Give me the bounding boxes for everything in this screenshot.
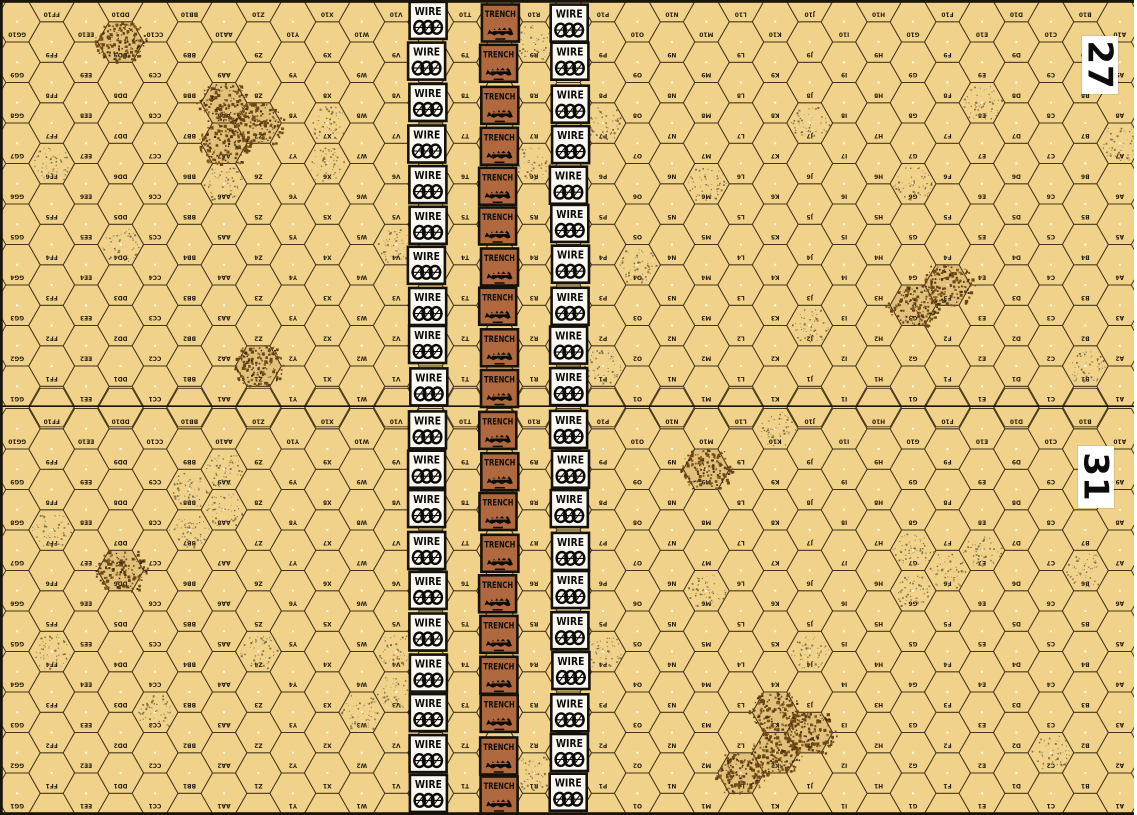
wire-counter[interactable]: WIRE — [551, 5, 588, 42]
hex-label: R6 — [530, 579, 539, 585]
hex-label: Z2 — [254, 334, 262, 340]
hex-label: D7 — [1012, 132, 1021, 138]
hex-label: L6 — [737, 172, 745, 178]
wire-counter[interactable]: WIRE — [552, 571, 589, 608]
hex-label: T2 — [461, 334, 469, 340]
wire-counter-label: WIRE — [415, 738, 442, 751]
hex-label: T5 — [461, 620, 469, 626]
wire-counter[interactable]: WIRE — [552, 246, 589, 283]
hex-label: J6 — [807, 172, 814, 178]
hex-label: CC7 — [149, 152, 162, 158]
trench-counter-label: TRENCH — [483, 662, 514, 672]
wire-counter[interactable]: WIRE — [408, 247, 445, 284]
hex-label: Z5 — [254, 620, 262, 626]
hex-label: X6 — [323, 172, 332, 178]
hex-label: O5 — [633, 233, 642, 239]
hex-label: Z1 — [254, 782, 262, 788]
trench-counter-label: TRENCH — [484, 92, 515, 102]
hex-label: L9 — [737, 458, 745, 464]
hex-label: I9 — [841, 478, 847, 484]
hex-label: M8 — [701, 112, 711, 118]
hex-label: N5 — [667, 620, 676, 626]
board-number-panel-27: 27 — [1082, 36, 1118, 94]
hex-label: J2 — [807, 334, 814, 340]
trench-counter[interactable]: TRENCH — [480, 738, 517, 775]
hex-label: E8 — [978, 112, 986, 118]
trench-counter-label: TRENCH — [482, 581, 513, 591]
trench-counter[interactable]: TRENCH — [481, 87, 518, 124]
hex-label: H7 — [874, 539, 883, 545]
hex-label: Z10 — [252, 10, 264, 16]
hex-label: EE1 — [80, 802, 92, 808]
hex-label: C7 — [1047, 152, 1055, 158]
hex-label: A7 — [1115, 559, 1124, 565]
hex-label: C8 — [1047, 112, 1055, 118]
wire-counter[interactable]: WIRE — [410, 207, 447, 244]
hex-label: G10 — [906, 31, 919, 37]
trench-counter[interactable]: TRENCH — [480, 657, 517, 694]
hex-label: CC7 — [149, 559, 162, 565]
hex-label: L5 — [737, 213, 745, 219]
hex-label: I1 — [841, 802, 847, 808]
hex-label: K7 — [771, 559, 780, 565]
hex-label: E4 — [978, 681, 986, 687]
hex-label: E8 — [978, 519, 986, 525]
hex-label: N3 — [667, 294, 676, 300]
hex-label: T8 — [461, 91, 469, 97]
hex-label: K8 — [771, 112, 780, 118]
hex-label: T10 — [459, 417, 471, 423]
hex-label: M3 — [701, 721, 711, 727]
trench-counter[interactable]: TRENCH — [481, 329, 518, 366]
hex-label: J8 — [807, 498, 814, 504]
hex-label: F9 — [943, 458, 951, 464]
hex-label: H6 — [874, 579, 883, 585]
wire-counter-label: WIRE — [557, 291, 584, 304]
hex-label: X8 — [323, 498, 332, 504]
hex-label: AA9 — [217, 71, 230, 77]
hex-label: EE10 — [78, 31, 94, 37]
hex-label: M1 — [701, 802, 711, 808]
hex-label: F9 — [943, 51, 951, 57]
hex-label: J5 — [807, 213, 814, 219]
hex-label: L2 — [737, 334, 745, 340]
trench-counter[interactable]: TRENCH — [481, 370, 518, 407]
hex-label: O2 — [633, 762, 642, 768]
trench-counter[interactable]: TRENCH — [481, 535, 518, 572]
wire-counter[interactable]: WIRE — [551, 205, 588, 242]
hex-label: BB1 — [183, 375, 196, 381]
hex-label: GG7 — [10, 559, 24, 565]
hex-label: T9 — [461, 51, 469, 57]
hex-label: O4 — [633, 681, 642, 687]
wire-counter-label: WIRE — [555, 777, 582, 790]
hex-label: C3 — [1047, 721, 1055, 727]
hex-label: R9 — [530, 458, 539, 464]
hex-label: AA4 — [217, 681, 230, 687]
wire-counter[interactable]: WIRE — [410, 735, 447, 772]
hex-label: K4 — [771, 681, 780, 687]
hex-label: M9 — [701, 71, 711, 77]
hex-label: Y5 — [289, 233, 298, 239]
hex-label: E1 — [978, 802, 986, 808]
wire-counter-label: WIRE — [413, 535, 440, 548]
hex-label: FF4 — [46, 660, 58, 666]
hex-label: K9 — [771, 478, 780, 484]
hex-label: E2 — [978, 355, 986, 361]
hex-label: K8 — [771, 519, 780, 525]
hex-label: W5 — [356, 640, 367, 646]
wire-counter[interactable]: WIRE — [409, 614, 446, 651]
hex-label: GG4 — [10, 274, 24, 280]
hex-label: W8 — [356, 519, 367, 525]
trench-counter[interactable]: TRENCH — [481, 695, 518, 732]
trench-counter[interactable]: TRENCH — [479, 575, 516, 612]
hex-label: D4 — [1012, 660, 1021, 666]
trench-counter-label: TRENCH — [482, 293, 513, 303]
hex-label: L4 — [737, 253, 745, 259]
hex-label: O7 — [633, 559, 642, 565]
trench-counter[interactable]: TRENCH — [480, 493, 517, 530]
wire-counter[interactable]: WIRE — [409, 84, 446, 121]
hex-label: V10 — [390, 10, 403, 16]
hex-label: P1 — [599, 375, 607, 381]
wire-counter[interactable]: WIRE — [552, 288, 589, 325]
hex-label: Y4 — [289, 681, 298, 687]
wire-counter[interactable]: WIRE — [409, 288, 446, 325]
hex-label: N4 — [667, 660, 676, 666]
hex-label: DD3 — [114, 294, 128, 300]
hex-label: M10 — [699, 438, 713, 444]
wire-counter[interactable]: WIRE — [550, 368, 587, 405]
wire-counter[interactable]: WIRE — [550, 774, 587, 811]
hex-label: BB6 — [183, 579, 196, 585]
hex-label: A8 — [1115, 112, 1124, 118]
wire-counter[interactable]: WIRE — [408, 490, 445, 527]
wire-counter[interactable]: WIRE — [408, 43, 445, 80]
wire-counter[interactable]: WIRE — [551, 694, 588, 731]
wire-counter-label: WIRE — [556, 615, 583, 628]
hex-label: A1 — [1115, 395, 1124, 401]
hex-label: DD8 — [114, 498, 128, 504]
hex-label: FF10 — [44, 10, 60, 16]
hex-label: R1 — [530, 375, 539, 381]
hex-label: E4 — [978, 274, 986, 280]
hex-label: Y10 — [287, 31, 300, 37]
trench-counter[interactable]: TRENCH — [482, 5, 519, 42]
hex-label: B7 — [1081, 539, 1090, 545]
hex-label: W1 — [356, 802, 367, 808]
hex-label: D10 — [1010, 417, 1023, 423]
trench-counter[interactable]: TRENCH — [481, 777, 518, 814]
hex-label: AA6 — [217, 193, 230, 199]
trench-counter-label: TRENCH — [484, 540, 515, 550]
hex-label: D4 — [1012, 253, 1021, 259]
hex-label: M3 — [701, 314, 711, 320]
wire-counter[interactable]: WIRE — [552, 86, 589, 123]
hex-label: BB2 — [183, 334, 196, 340]
hex-label: T2 — [461, 741, 469, 747]
hex-label: I2 — [841, 762, 847, 768]
hex-label: X6 — [323, 579, 332, 585]
hex-label: X5 — [323, 620, 332, 626]
hex-label: B10 — [1079, 10, 1092, 16]
hex-label: Z6 — [254, 172, 262, 178]
wire-counter[interactable]: WIRE — [551, 612, 588, 649]
wire-counter[interactable]: WIRE — [408, 126, 445, 163]
hex-label: W8 — [356, 112, 367, 118]
hex-label: L9 — [737, 51, 745, 57]
wire-counter[interactable]: WIRE — [408, 532, 445, 569]
hex-label: J10 — [805, 10, 816, 16]
hex-label: EE6 — [80, 193, 92, 199]
hex-label: N9 — [667, 51, 676, 57]
trench-counter-label: TRENCH — [484, 254, 515, 264]
wire-counter[interactable]: WIRE — [550, 411, 587, 448]
hex-label: X7 — [323, 539, 332, 545]
hex-label: M4 — [701, 681, 711, 687]
hex-label: GG5 — [10, 640, 24, 646]
hex-label: W3 — [356, 314, 367, 320]
trench-counter-label: TRENCH — [484, 782, 515, 792]
wire-counter[interactable]: WIRE — [552, 451, 589, 488]
wire-counter[interactable]: WIRE — [410, 694, 447, 731]
hex-label: B10 — [1079, 417, 1092, 423]
hex-label: BB7 — [183, 132, 196, 138]
hex-label: F8 — [943, 498, 951, 504]
hex-label: L10 — [735, 10, 747, 16]
hex-label: G5 — [909, 233, 918, 239]
hex-label: A6 — [1115, 193, 1124, 199]
hex-label: DD5 — [114, 213, 128, 219]
hex-label: GG9 — [10, 478, 24, 484]
hex-label: A3 — [1115, 314, 1124, 320]
hex-label: N7 — [667, 539, 676, 545]
trench-counter[interactable]: TRENCH — [481, 453, 518, 490]
wire-counter-label: WIRE — [555, 330, 582, 343]
trench-counter-label: TRENCH — [482, 213, 513, 223]
trench-counter[interactable]: TRENCH — [479, 208, 516, 245]
wire-counter-label: WIRE — [415, 371, 442, 384]
hex-label: B6 — [1081, 579, 1090, 585]
hex-label: DD3 — [114, 701, 128, 707]
hex-label: F10 — [941, 10, 953, 16]
trench-counter[interactable]: TRENCH — [479, 288, 516, 325]
hex-label: BB1 — [183, 782, 196, 788]
hex-label: Z2 — [254, 741, 262, 747]
hex-label: J6 — [807, 579, 814, 585]
wire-counter[interactable]: WIRE — [550, 327, 587, 364]
hex-label: DD7 — [114, 539, 128, 545]
wire-counter[interactable]: WIRE — [410, 775, 447, 812]
wire-counter[interactable]: WIRE — [552, 126, 589, 163]
hex-label: K6 — [771, 193, 780, 199]
hex-label: H6 — [874, 172, 883, 178]
wire-counter-label: WIRE — [415, 575, 442, 588]
hex-label: Z9 — [254, 51, 262, 57]
hex-label: V10 — [390, 417, 403, 423]
hex-label: P1 — [599, 782, 607, 788]
hex-label: P7 — [599, 539, 607, 545]
hex-label: I3 — [841, 314, 847, 320]
hex-label: X5 — [323, 213, 332, 219]
hex-label: AA10 — [215, 438, 232, 444]
board-number-panel-31: 31 — [1078, 446, 1114, 508]
hex-label: EE4 — [80, 681, 92, 687]
hex-label: G7 — [909, 152, 918, 158]
hex-label: F1 — [943, 782, 951, 788]
trench-counter[interactable]: TRENCH — [480, 45, 517, 82]
hex-label: I8 — [841, 519, 847, 525]
wire-counter[interactable]: WIRE — [410, 655, 447, 692]
hex-label: BB2 — [183, 741, 196, 747]
wire-counter[interactable]: WIRE — [551, 490, 588, 527]
wire-counter[interactable]: WIRE — [410, 368, 447, 405]
hex-label: Y2 — [289, 762, 298, 768]
wire-counter[interactable]: WIRE — [410, 2, 447, 39]
hex-label: F6 — [943, 172, 951, 178]
board-number-31: 31 — [1079, 452, 1113, 501]
hex-label: BB3 — [183, 701, 196, 707]
hex-label: X2 — [323, 741, 332, 747]
hex-label: CC10 — [147, 31, 164, 37]
wire-counter[interactable]: WIRE — [551, 734, 588, 771]
hex-label: Y3 — [289, 721, 298, 727]
hex-label: F5 — [943, 213, 951, 219]
hex-label: N6 — [667, 579, 676, 585]
hex-label: V5 — [392, 620, 401, 626]
hex-label: W4 — [356, 274, 367, 280]
hex-label: I4 — [841, 681, 847, 687]
hex-label: BB3 — [183, 294, 196, 300]
hex-label: K10 — [769, 438, 782, 444]
hex-label: I4 — [841, 274, 847, 280]
hex-label: DD10 — [112, 417, 130, 423]
hex-boards-svg: GG10GG9GG8GG7GG6GG5GG4GG3GG2GG1FF10FF9FF… — [0, 0, 1137, 815]
hex-label: CC5 — [149, 233, 162, 239]
trench-counter[interactable]: TRENCH — [481, 128, 518, 165]
hex-label: M5 — [701, 640, 711, 646]
wire-counter[interactable]: WIRE — [551, 43, 588, 80]
hex-label: G5 — [909, 640, 918, 646]
hex-label: P2 — [599, 334, 607, 340]
hex-label: L1 — [737, 375, 745, 381]
wire-counter-label: WIRE — [556, 208, 583, 221]
hex-label: Z3 — [254, 701, 262, 707]
hex-label: F3 — [943, 701, 951, 707]
hex-label: H3 — [874, 701, 883, 707]
wire-counter-label: WIRE — [414, 329, 441, 342]
wire-counter[interactable]: WIRE — [409, 326, 446, 363]
hex-label: B4 — [1081, 660, 1090, 666]
hex-label: I3 — [841, 721, 847, 727]
hex-label: C10 — [1045, 31, 1058, 37]
hex-label: Z4 — [254, 253, 262, 259]
hex-label: G1 — [909, 802, 918, 808]
trench-counter-label: TRENCH — [482, 417, 513, 427]
hex-label: H7 — [874, 132, 883, 138]
hex-label: A3 — [1115, 721, 1124, 727]
hex-label: E6 — [978, 193, 986, 199]
hex-label: CC1 — [149, 395, 162, 401]
trench-counter[interactable]: TRENCH — [479, 168, 516, 205]
wire-counter[interactable]: WIRE — [552, 652, 589, 689]
trench-counter-label: TRENCH — [484, 133, 515, 143]
trench-counter[interactable]: TRENCH — [479, 412, 516, 449]
wire-counter[interactable]: WIRE — [552, 533, 589, 570]
hex-label: Y9 — [289, 478, 298, 484]
wire-counter-label: WIRE — [555, 170, 582, 183]
wire-counter-label: WIRE — [556, 493, 583, 506]
hex-label: G2 — [909, 762, 918, 768]
hex-label: Y4 — [289, 274, 298, 280]
hex-label: AA5 — [217, 233, 230, 239]
wire-counter[interactable]: WIRE — [409, 411, 446, 448]
hex-label: Y6 — [289, 600, 298, 606]
hex-label: AA4 — [217, 274, 230, 280]
hex-label: CC9 — [149, 478, 162, 484]
hex-label: BB9 — [183, 458, 196, 464]
hex-label: R10 — [528, 417, 541, 423]
hex-label: P5 — [599, 620, 607, 626]
wire-counter[interactable]: WIRE — [410, 572, 447, 609]
hex-label: T3 — [461, 701, 469, 707]
hex-label: N2 — [667, 334, 676, 340]
wire-counter-label: WIRE — [557, 129, 584, 142]
hex-label: C2 — [1047, 355, 1055, 361]
wire-counter[interactable]: WIRE — [409, 166, 446, 203]
hex-label: N6 — [667, 172, 676, 178]
hex-label: Y2 — [289, 355, 298, 361]
hex-label: I10 — [839, 438, 849, 444]
hex-label: I6 — [841, 600, 847, 606]
hex-label: FF1 — [46, 782, 58, 788]
hex-label: BB10 — [181, 417, 198, 423]
hex-label: FF8 — [46, 498, 58, 504]
wire-counter[interactable]: WIRE — [550, 167, 587, 204]
wire-counter-label: WIRE — [556, 697, 583, 710]
hex-label: G9 — [909, 478, 918, 484]
wire-counter[interactable]: WIRE — [408, 451, 445, 488]
hex-label: P9 — [599, 458, 607, 464]
hex-label: Z9 — [254, 458, 262, 464]
hex-label: F5 — [943, 620, 951, 626]
hex-label: D1 — [1012, 782, 1021, 788]
hex-label: T4 — [461, 253, 469, 259]
trench-counter[interactable]: TRENCH — [481, 249, 518, 286]
hex-label: CC5 — [149, 640, 162, 646]
hex-label: C3 — [1047, 314, 1055, 320]
hex-label: N10 — [665, 10, 678, 16]
trench-counter[interactable]: TRENCH — [480, 616, 517, 653]
hex-label: J9 — [807, 51, 814, 57]
hex-label: C7 — [1047, 559, 1055, 565]
hex-label: H1 — [874, 782, 883, 788]
hex-label: R5 — [530, 213, 539, 219]
trench-counter-label: TRENCH — [485, 10, 516, 20]
hex-label: C6 — [1047, 600, 1055, 606]
hex-label: F10 — [941, 417, 953, 423]
hex-label: G4 — [909, 681, 918, 687]
hex-label: P8 — [599, 91, 607, 97]
hex-label: J3 — [807, 701, 814, 707]
hex-label: GG3 — [10, 721, 24, 727]
hex-label: E9 — [978, 71, 986, 77]
wire-counter-label: WIRE — [414, 169, 441, 182]
hex-label: GG4 — [10, 681, 24, 687]
hex-label: EE9 — [80, 478, 92, 484]
hex-label: FF9 — [46, 458, 58, 464]
